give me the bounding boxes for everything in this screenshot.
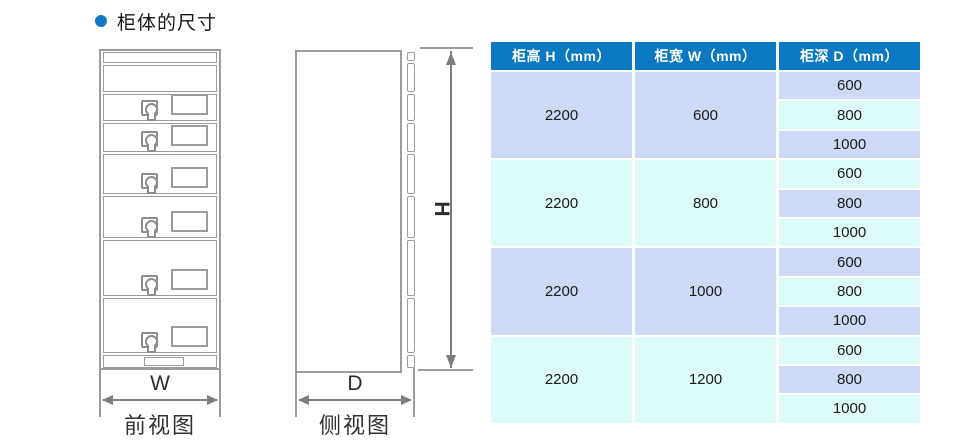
- cell-cabinet-depth: 600: [779, 248, 920, 275]
- cell-cabinet-depth: 800: [779, 278, 920, 305]
- cabinet-drawer: [103, 94, 217, 121]
- hinge-segment: [407, 63, 415, 92]
- depth-dimension-arrow: [299, 399, 411, 401]
- handle-lock-icon: [141, 173, 158, 189]
- handle-lock-icon: [141, 332, 158, 348]
- table-row: 22001000600: [491, 248, 920, 275]
- cell-cabinet-height: 2200: [491, 248, 632, 334]
- handle-lock-icon: [141, 100, 158, 116]
- cell-cabinet-depth: 800: [779, 190, 920, 217]
- cell-cabinet-depth: 600: [779, 72, 920, 99]
- drawer-nameplate: [171, 269, 208, 290]
- hinge-segment: [407, 94, 415, 121]
- drawer-front: [104, 270, 216, 292]
- hinge-segment: [407, 240, 415, 296]
- cabinet-drawer: [103, 298, 217, 353]
- cell-cabinet-width: 1000: [635, 248, 776, 334]
- drawer-nameplate: [171, 125, 208, 146]
- spec-table-container: 柜高 H（mm） 柜宽 W（mm） 柜深 D（mm） 2200600600800…: [488, 40, 923, 425]
- hinge-segment: [407, 355, 415, 368]
- cell-cabinet-depth: 600: [779, 337, 920, 364]
- drawer-front: [104, 168, 216, 190]
- table-row: 2200600600: [491, 72, 920, 99]
- cell-cabinet-height: 2200: [491, 337, 632, 423]
- drawer-nameplate: [171, 167, 208, 188]
- page: 柜体的尺寸: [0, 0, 960, 445]
- hinge-segment: [407, 123, 415, 152]
- table-row: 2200800600: [491, 160, 920, 187]
- height-dim-tick-top: [420, 47, 473, 49]
- height-dim-tick-bottom: [418, 369, 473, 371]
- cell-cabinet-width: 1200: [635, 337, 776, 423]
- drawer-front: [104, 95, 216, 117]
- cell-cabinet-width: 600: [635, 72, 776, 158]
- arrow-down-icon: [446, 355, 456, 368]
- spec-table-body: 2200600600800100022008006008001000220010…: [491, 72, 920, 423]
- drawer-front: [104, 126, 216, 148]
- col-header-cabinet-height: 柜高 H（mm）: [491, 42, 632, 70]
- cell-cabinet-depth: 1000: [779, 395, 920, 422]
- cabinet-drawer: [103, 154, 217, 194]
- cell-cabinet-depth: 800: [779, 101, 920, 128]
- table-header-row: 柜高 H（mm） 柜宽 W（mm） 柜深 D（mm）: [491, 42, 920, 70]
- side-view-caption: 侧视图: [295, 408, 415, 440]
- bullet-icon: [95, 15, 107, 27]
- cabinet-drawer: [103, 240, 217, 296]
- front-view-caption: 前视图: [99, 408, 221, 440]
- cabinet-drawer: [103, 196, 217, 238]
- drawer-front: [104, 212, 216, 234]
- cell-cabinet-depth: 800: [779, 366, 920, 393]
- cell-cabinet-height: 2200: [491, 160, 632, 246]
- cabinet-bottom-strip: [103, 355, 217, 368]
- side-view-cabinet-outline: [295, 50, 402, 373]
- cabinet-drawer: [103, 123, 217, 152]
- drawer-nameplate: [171, 326, 208, 347]
- spec-table: 柜高 H（mm） 柜宽 W（mm） 柜深 D（mm） 2200600600800…: [488, 40, 923, 425]
- drawer-nameplate: [171, 211, 208, 232]
- depth-dim-label: D: [295, 372, 415, 396]
- cell-cabinet-width: 800: [635, 160, 776, 246]
- table-row: 22001200600: [491, 337, 920, 364]
- cell-cabinet-depth: 600: [779, 160, 920, 187]
- hinge-segment: [407, 154, 415, 194]
- cell-cabinet-depth: 1000: [779, 219, 920, 246]
- cabinet-top-strip: [103, 52, 217, 63]
- hinge-segment: [407, 298, 415, 353]
- handle-lock-icon: [141, 131, 158, 147]
- drawer-front: [104, 327, 216, 349]
- arrow-up-icon: [446, 52, 456, 65]
- cell-cabinet-height: 2200: [491, 72, 632, 158]
- cabinet-blank-panel: [103, 65, 217, 92]
- handle-lock-icon: [141, 275, 158, 291]
- bottom-nameplate: [144, 357, 184, 366]
- cell-cabinet-depth: 1000: [779, 307, 920, 334]
- col-header-cabinet-depth: 柜深 D（mm）: [779, 42, 920, 70]
- side-view-door-hinge-strip: [407, 52, 415, 368]
- width-dimension-arrow: [103, 399, 217, 401]
- hinge-segment: [407, 52, 415, 61]
- handle-lock-icon: [141, 217, 158, 233]
- cell-cabinet-depth: 1000: [779, 131, 920, 158]
- col-header-cabinet-width: 柜宽 W（mm）: [635, 42, 776, 70]
- hinge-segment: [407, 196, 415, 238]
- drawer-nameplate: [171, 94, 208, 115]
- page-title: 柜体的尺寸: [117, 8, 217, 35]
- height-dim-label: H: [429, 193, 453, 225]
- front-view-cabinet-outline: [99, 49, 221, 370]
- width-dim-label: W: [99, 372, 221, 396]
